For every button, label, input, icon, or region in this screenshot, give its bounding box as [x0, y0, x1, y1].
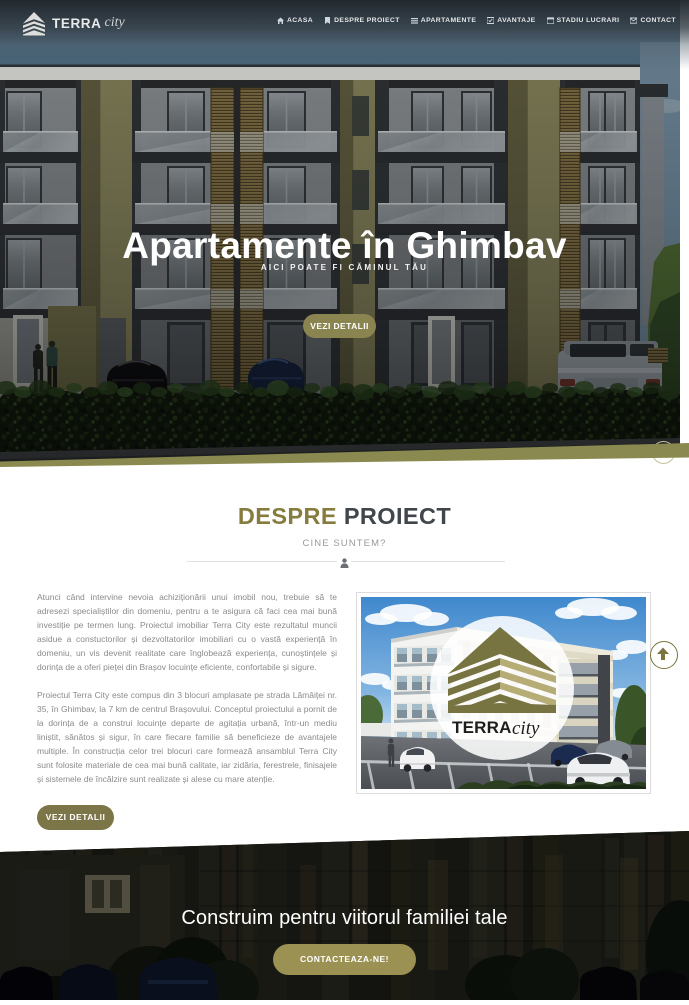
svg-text:city: city — [512, 718, 540, 739]
svg-text:TERRA: TERRA — [452, 718, 512, 737]
